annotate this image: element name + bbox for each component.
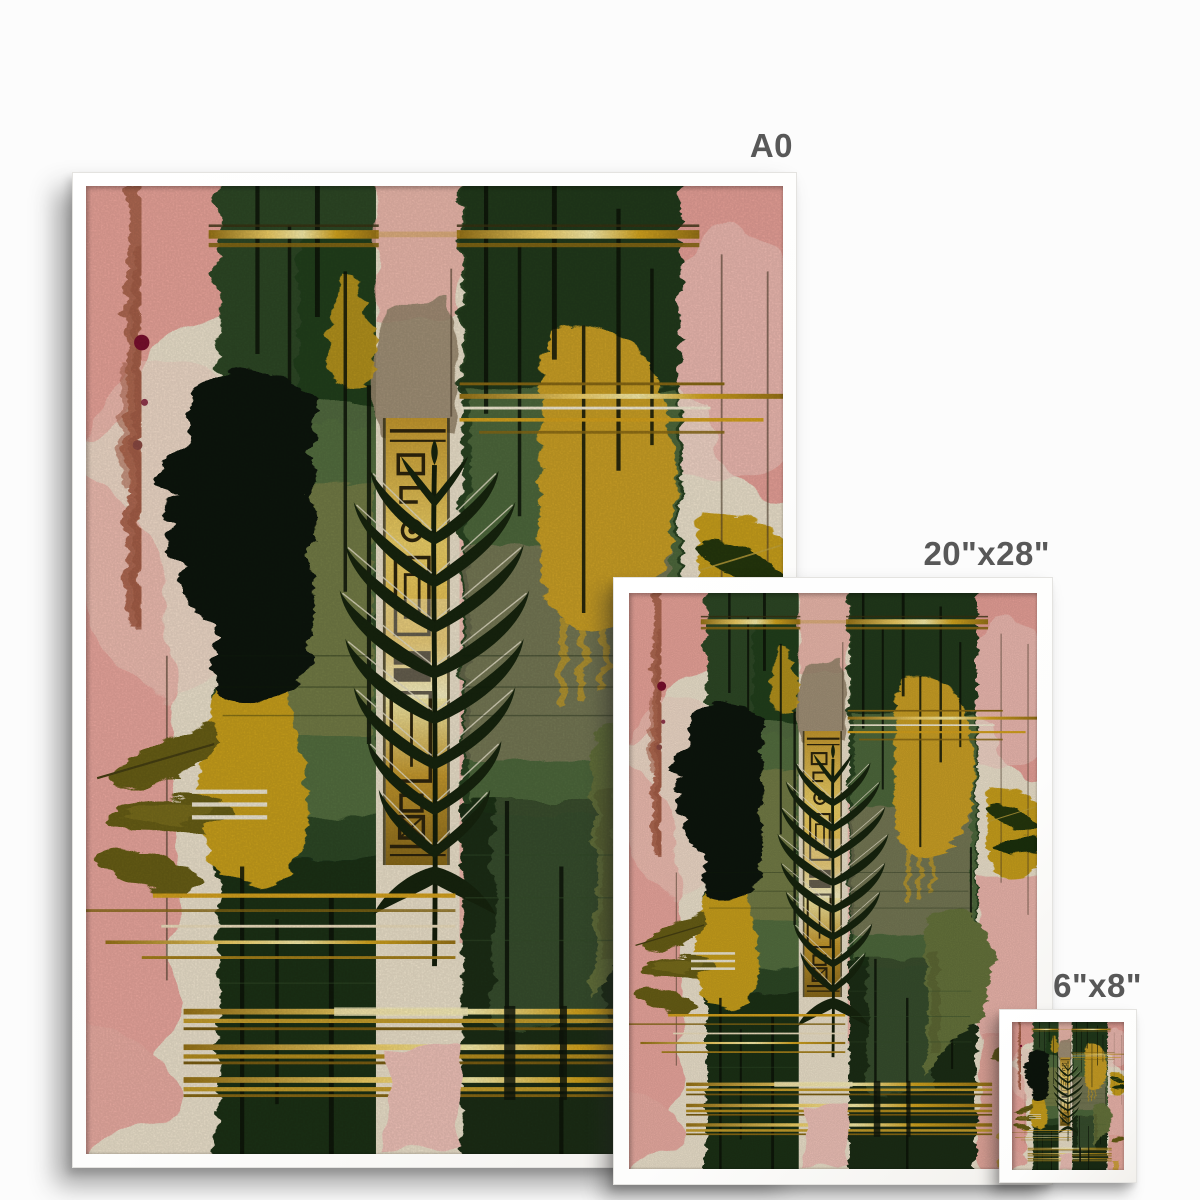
size-label-a0: A0: [640, 127, 793, 165]
framed-print-20x28: [613, 577, 1053, 1185]
artwork-canvas: [1012, 1022, 1124, 1170]
framed-print-6x8: [999, 1009, 1137, 1183]
artwork-6x8: [1012, 1022, 1124, 1170]
size-label-20x28: 20"x28": [850, 535, 1050, 573]
product-size-comparison: A0 20"x28" 6"x8": [0, 0, 1200, 1200]
artwork-canvas: [629, 593, 1037, 1169]
artwork-20x28: [629, 593, 1037, 1169]
